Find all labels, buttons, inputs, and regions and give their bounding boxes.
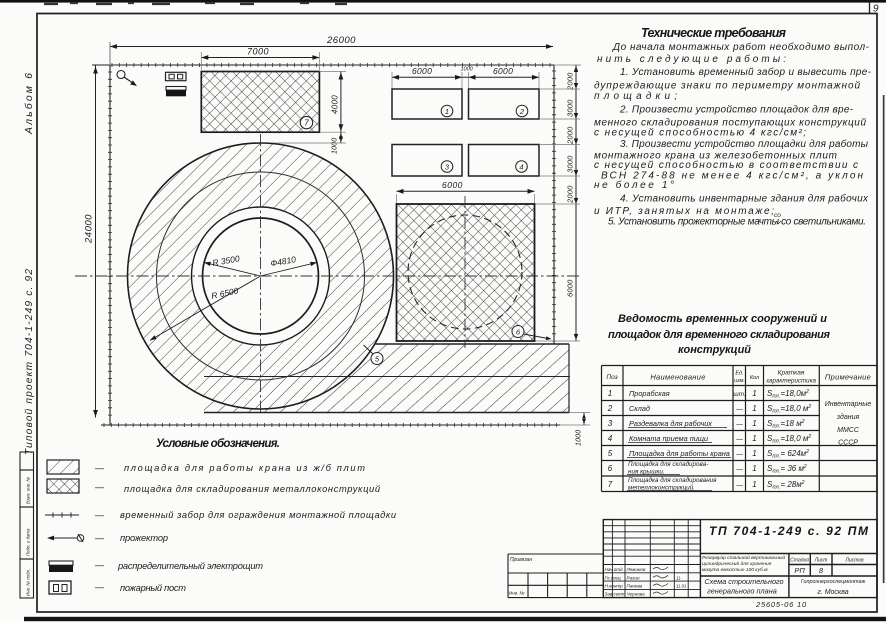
svg-text:Прорабская: Прорабская	[629, 389, 670, 398]
svg-text:1: 1	[752, 449, 756, 458]
svg-text:Н.контр: Н.контр	[605, 584, 624, 589]
svg-text:5. Установить прожекторные м: 5. Установить прожекторные мачты со свет…	[608, 217, 866, 228]
svg-text:Инв. №: Инв. №	[509, 591, 525, 596]
svg-text:3. Произвести устройство пло: 3. Произвести устройство площадки для ра…	[620, 138, 869, 150]
svg-text:26000: 26000	[326, 35, 356, 46]
svg-text:Наименование: Наименование	[650, 373, 705, 382]
svg-text:Схема строительного: Схема строительного	[704, 577, 783, 586]
svg-text:2000: 2000	[566, 72, 575, 91]
svg-text:1: 1	[752, 480, 756, 489]
svg-text:характеристика: характеристика	[765, 378, 816, 385]
svg-text:2. Произвести устройство пло: 2. Произвести устройство площадок для вр…	[619, 105, 854, 116]
svg-text:2000: 2000	[566, 126, 575, 145]
svg-text:Площадка для складирова-: Площадка для складирова-	[628, 460, 708, 468]
svg-text:прожектор: прожектор	[120, 533, 168, 543]
svg-text:г. Москва: г. Москва	[817, 589, 848, 596]
svg-text:6000: 6000	[493, 66, 513, 76]
svg-text:Зав.сект: Зав.сект	[605, 592, 625, 597]
svg-text:Чернова: Чернова	[627, 592, 646, 597]
svg-text:Гипроэнергоспецмонтаж: Гипроэнергоспецмонтаж	[801, 579, 866, 585]
svg-text:—: —	[94, 582, 105, 592]
svg-text:6000: 6000	[566, 279, 575, 297]
svg-text:1000: 1000	[332, 138, 339, 154]
svg-text:Ведомость временных сооружен: Ведомость временных сооружений и	[618, 313, 827, 325]
svg-text:площадок для временного скл: площадок для временного складирования	[608, 329, 831, 341]
svg-text:1000: 1000	[461, 67, 474, 73]
svg-text:Панова: Панова	[627, 584, 643, 589]
svg-text:—: —	[735, 451, 743, 458]
svg-text:1: 1	[752, 434, 756, 443]
svg-text:—: —	[735, 482, 743, 489]
svg-text:—: —	[94, 560, 105, 570]
svg-text:дупреждающие знаки по перим: дупреждающие знаки по периметру монтажно…	[594, 81, 860, 92]
svg-text:—: —	[735, 466, 743, 473]
svg-text:Стадия: Стадия	[790, 558, 809, 564]
svg-text:распределительный электрощит: распределительный электрощит	[117, 561, 263, 571]
svg-text:Привязан: Привязан	[510, 557, 532, 563]
svg-text:изм.: изм.	[734, 378, 745, 384]
svg-text:Краткая: Краткая	[778, 370, 805, 377]
svg-text:1: 1	[608, 389, 612, 398]
svg-text:здания: здания	[836, 413, 860, 421]
svg-text:Гл.спец: Гл.спец	[605, 575, 622, 580]
svg-text:площадка для складирования: площадка для складирования металлоконстр…	[124, 484, 380, 494]
svg-text:Кол: Кол	[750, 375, 759, 381]
svg-text:—: —	[94, 482, 105, 492]
svg-text:11.91: 11.91	[676, 584, 686, 589]
svg-text:мазута емкостью 100 куб.м: мазута емкостью 100 куб.м	[702, 567, 768, 573]
svg-text:с несущей способностью 4 кг: с несущей способностью 4 кгс/см²;	[594, 127, 806, 139]
svg-text:—: —	[735, 436, 743, 443]
svg-text:—: —	[94, 510, 105, 520]
svg-text:Раздевалка для рабочих: Раздевалка для рабочих	[629, 419, 712, 428]
svg-text:Типовой проект 704-1-249 с.: Типовой проект 704-1-249 с. 92	[24, 269, 35, 455]
svg-text:со: со	[774, 212, 781, 219]
svg-text:Площадка для складирования: Площадка для складирования	[628, 476, 717, 484]
svg-text:6000: 6000	[442, 180, 463, 190]
svg-text:СССР: СССР	[838, 440, 858, 447]
svg-text:24000: 24000	[84, 214, 95, 244]
svg-text:1: 1	[752, 464, 756, 473]
svg-text:нить следующие работы:: нить следующие работы:	[597, 53, 786, 65]
svg-text:РП: РП	[794, 566, 805, 575]
svg-text:3: 3	[608, 419, 613, 428]
svg-text:3000: 3000	[566, 155, 575, 173]
svg-text:Резервуар стальной вертикальны: Резервуар стальной вертикальный	[702, 554, 785, 561]
svg-text:1: 1	[752, 389, 756, 398]
svg-text:с несущей способностью в с: с несущей способностью в соответствии с	[594, 159, 858, 171]
svg-text:—: —	[94, 463, 105, 473]
svg-text:4: 4	[608, 434, 613, 443]
svg-text:25605-06 10: 25605-06 10	[755, 600, 807, 609]
svg-text:1. Установить временный забо: 1. Установить временный забор и вывесить…	[620, 66, 872, 78]
svg-text:Технические требования: Технические требования	[641, 26, 787, 40]
svg-text:9: 9	[873, 3, 879, 14]
svg-text:пожарный пост: пожарный пост	[120, 583, 186, 593]
svg-text:4. Установить инвентарные зд: 4. Установить инвентарные здания для раб…	[620, 193, 869, 205]
svg-text:генерального плана: генерального плана	[707, 587, 777, 596]
svg-text:1: 1	[445, 107, 449, 116]
svg-text:Рахин: Рахин	[627, 575, 640, 580]
svg-text:5: 5	[608, 449, 613, 458]
svg-text:Комната приема пищи: Комната приема пищи	[629, 434, 708, 443]
svg-text:Поз: Поз	[606, 374, 617, 381]
svg-text:1: 1	[752, 419, 756, 428]
svg-text:Лежинов: Лежинов	[626, 567, 646, 572]
svg-text:Листов: Листов	[844, 558, 864, 564]
svg-text:цилиндрический для хранения: цилиндрический для хранения	[702, 560, 772, 567]
svg-text:Инвентарные: Инвентарные	[825, 401, 872, 408]
svg-text:1: 1	[752, 404, 756, 413]
svg-text:2000: 2000	[566, 185, 575, 204]
svg-text:временный забор для огражде: временный забор для ограждения монтажной…	[120, 510, 396, 520]
svg-text:4000: 4000	[331, 95, 340, 114]
svg-text:Подп. и дата: Подп. и дата	[26, 528, 31, 556]
svg-text:Взам. инв. №: Взам. инв. №	[26, 477, 31, 504]
svg-text:7: 7	[304, 119, 309, 128]
svg-text:7: 7	[608, 480, 613, 489]
svg-text:6000: 6000	[412, 66, 432, 76]
svg-text:2: 2	[519, 107, 525, 116]
svg-text:4: 4	[519, 163, 523, 172]
svg-text:—: —	[735, 421, 743, 428]
svg-text:Площадка для работы крана: Площадка для работы крана	[629, 449, 730, 458]
svg-text:Альбом 6: Альбом 6	[23, 73, 35, 135]
svg-text:11-: 11-	[676, 575, 682, 580]
svg-text:До начала монтажных работ: До начала монтажных работ необходимо вып…	[612, 41, 870, 53]
svg-text:шт.: шт.	[733, 391, 746, 398]
svg-text:площадки;: площадки;	[594, 91, 677, 102]
svg-text:Условные обозначения.: Условные обозначения.	[156, 438, 280, 450]
svg-text:7000: 7000	[247, 47, 269, 57]
svg-text:Склад: Склад	[629, 404, 650, 413]
svg-text:2: 2	[607, 404, 613, 413]
svg-text:не более 1°: не более 1°	[594, 179, 674, 191]
svg-text:1000: 1000	[576, 430, 583, 446]
svg-text:Нач.отд: Нач.отд	[605, 567, 624, 572]
svg-text:—: —	[735, 406, 743, 413]
svg-text:ТП 704-1-249 с. 92 ПМ: ТП 704-1-249 с. 92 ПМ	[709, 524, 869, 538]
svg-text:Примечание: Примечание	[825, 373, 871, 382]
svg-text:—: —	[94, 533, 105, 543]
svg-text:конструкций: конструкций	[678, 344, 751, 356]
svg-text:ММСС: ММСС	[837, 427, 860, 434]
svg-text:Инв. № подл.: Инв. № подл.	[26, 569, 31, 596]
svg-text:Лист: Лист	[814, 558, 828, 564]
svg-text:3000: 3000	[566, 99, 575, 117]
svg-text:Ед.: Ед.	[735, 371, 743, 377]
svg-text:6: 6	[608, 464, 613, 473]
